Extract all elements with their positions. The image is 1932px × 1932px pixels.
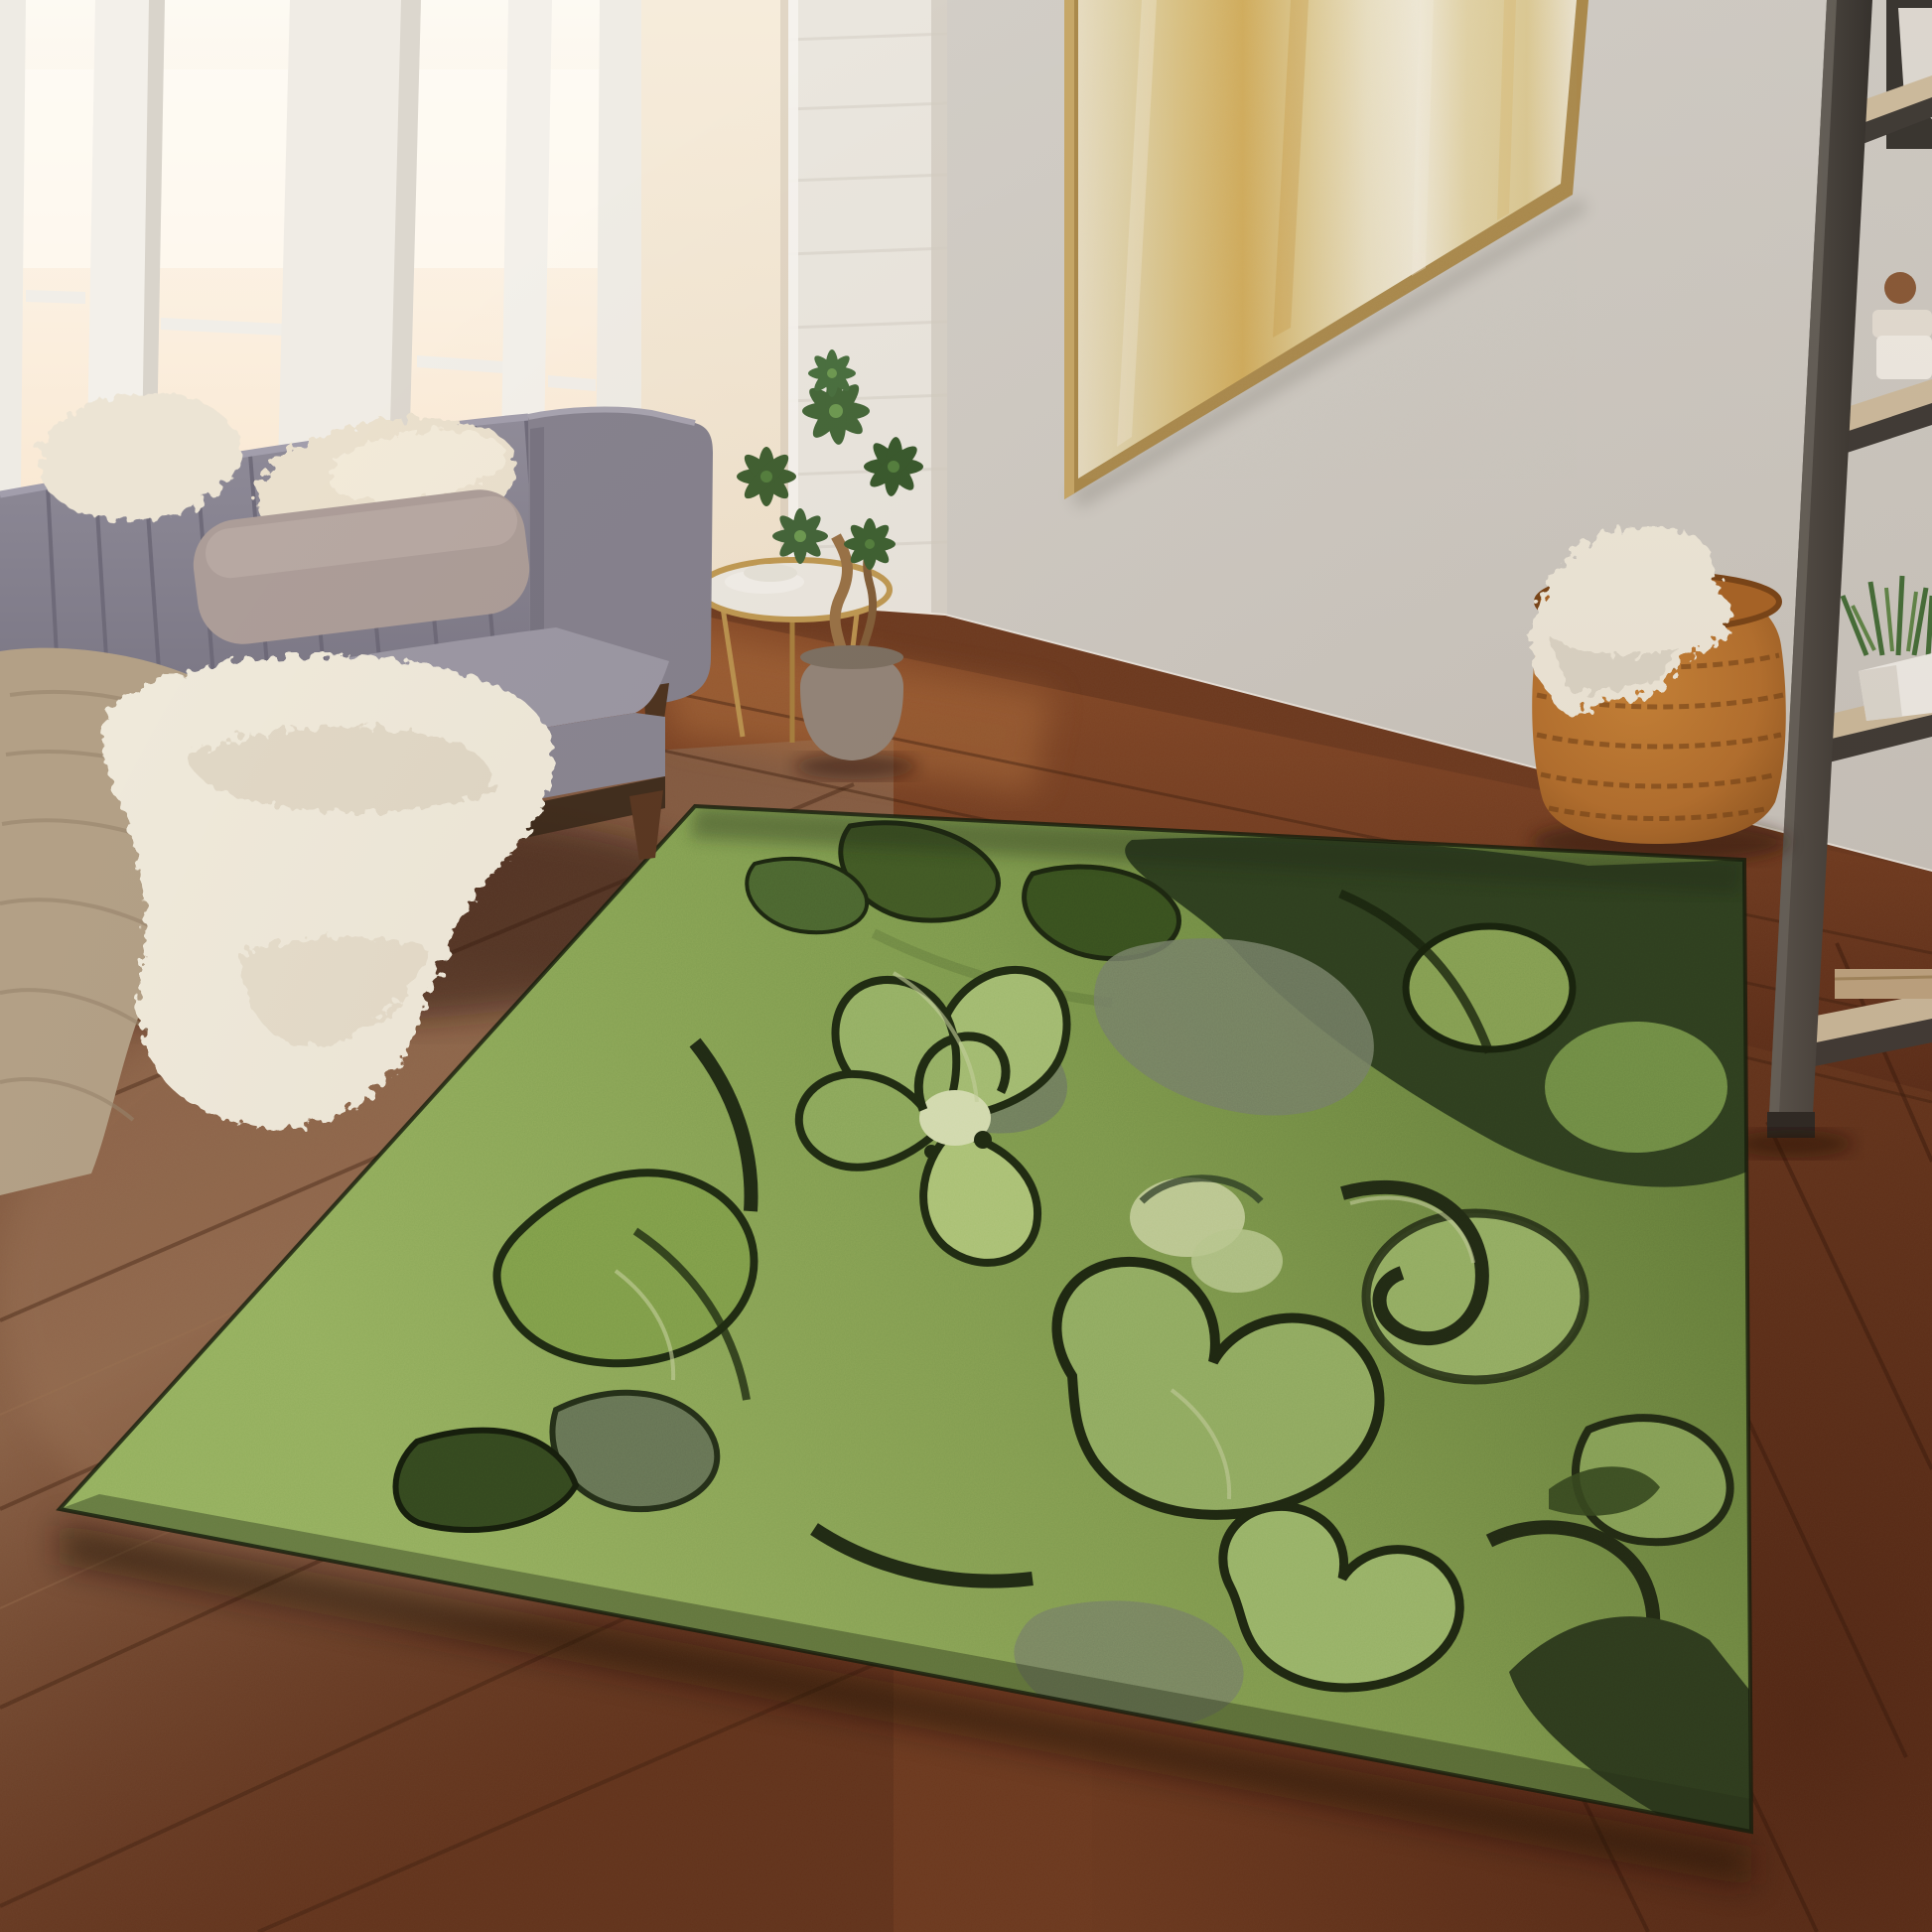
scene-canvas	[0, 0, 1932, 1932]
room-photo	[0, 0, 1932, 1932]
vignette	[0, 0, 1932, 1932]
